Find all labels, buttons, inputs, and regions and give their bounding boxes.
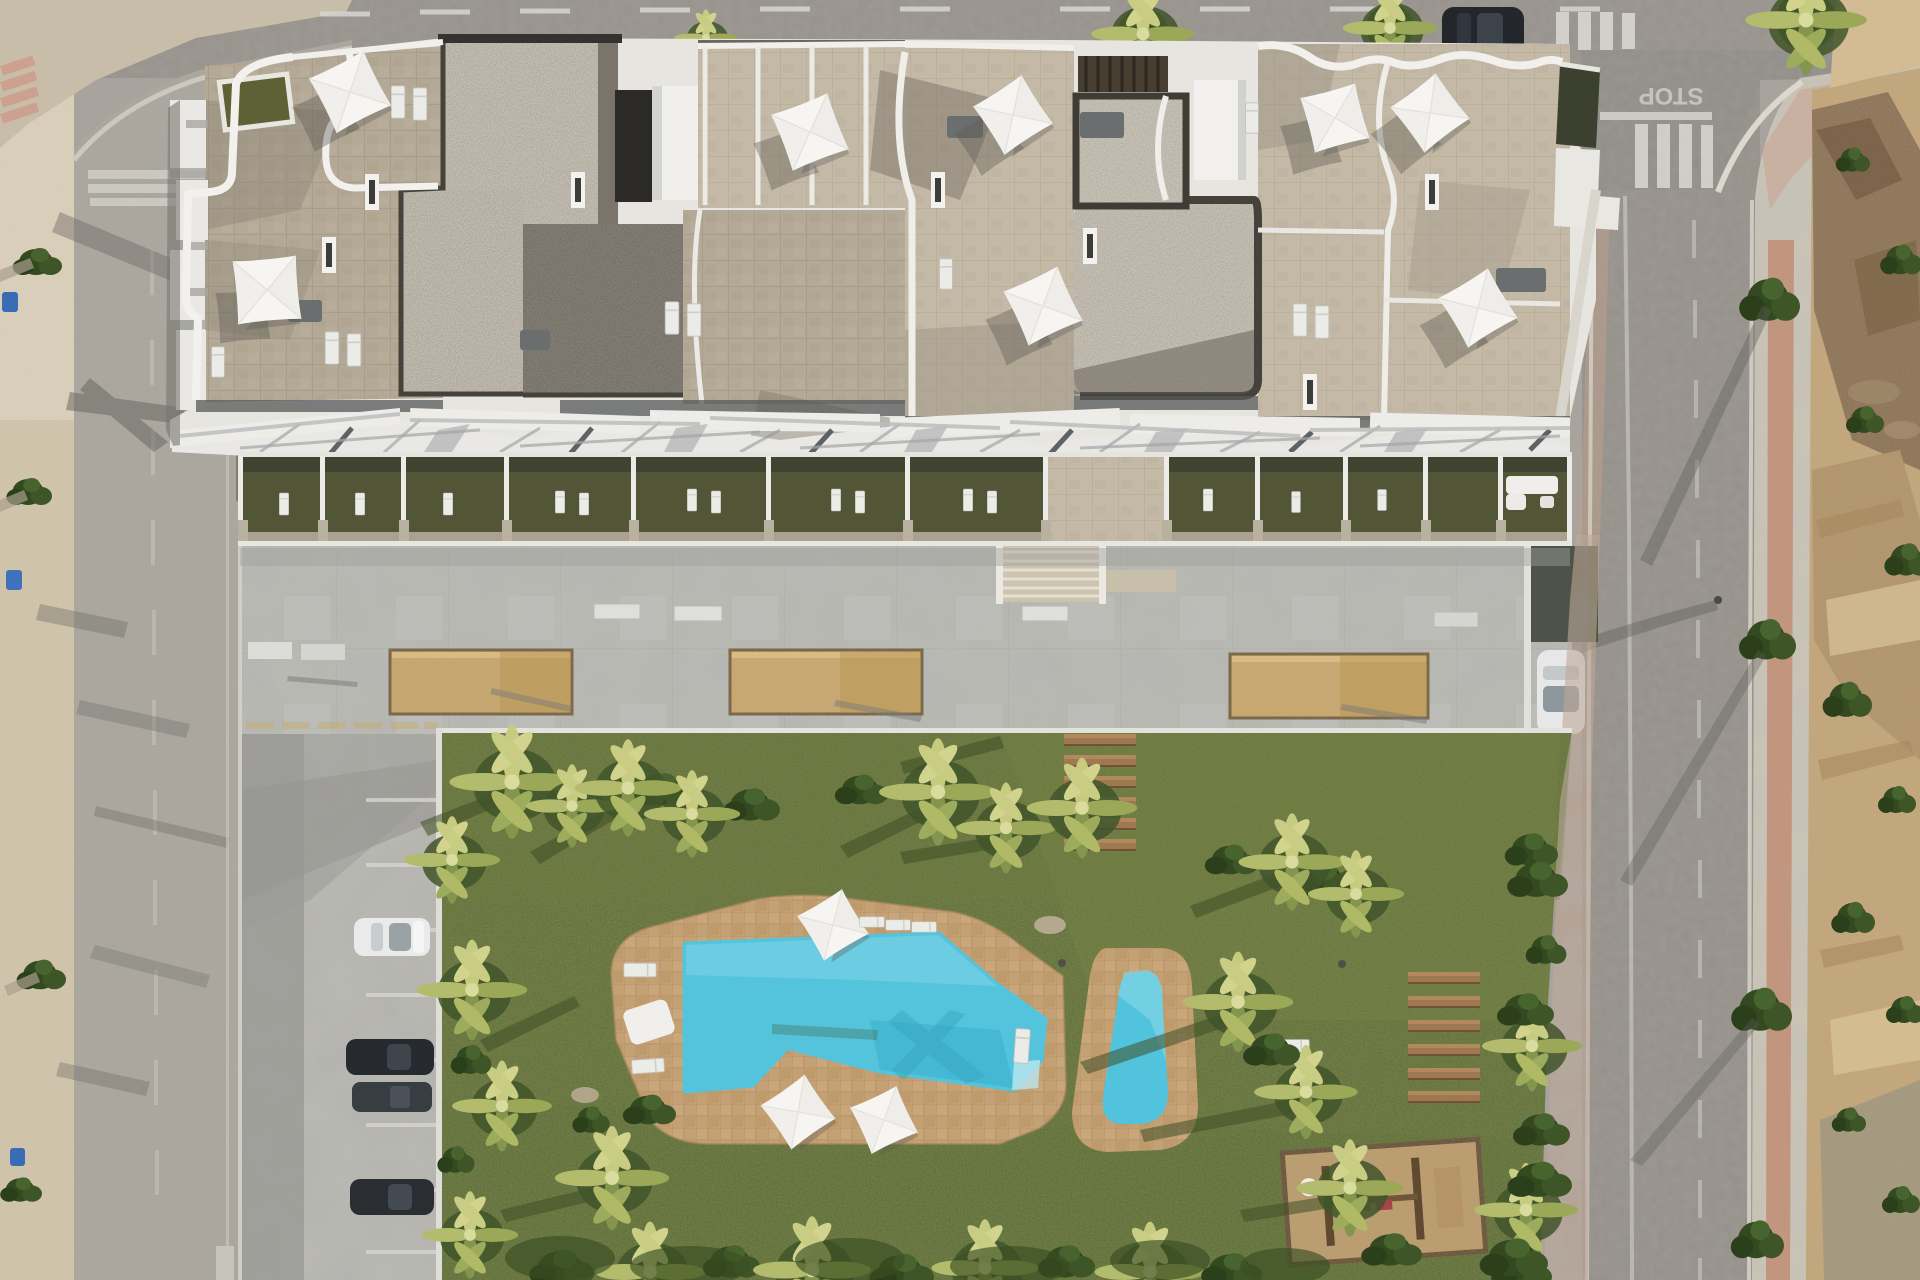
- svg-text:STOP: STOP: [1639, 82, 1704, 109]
